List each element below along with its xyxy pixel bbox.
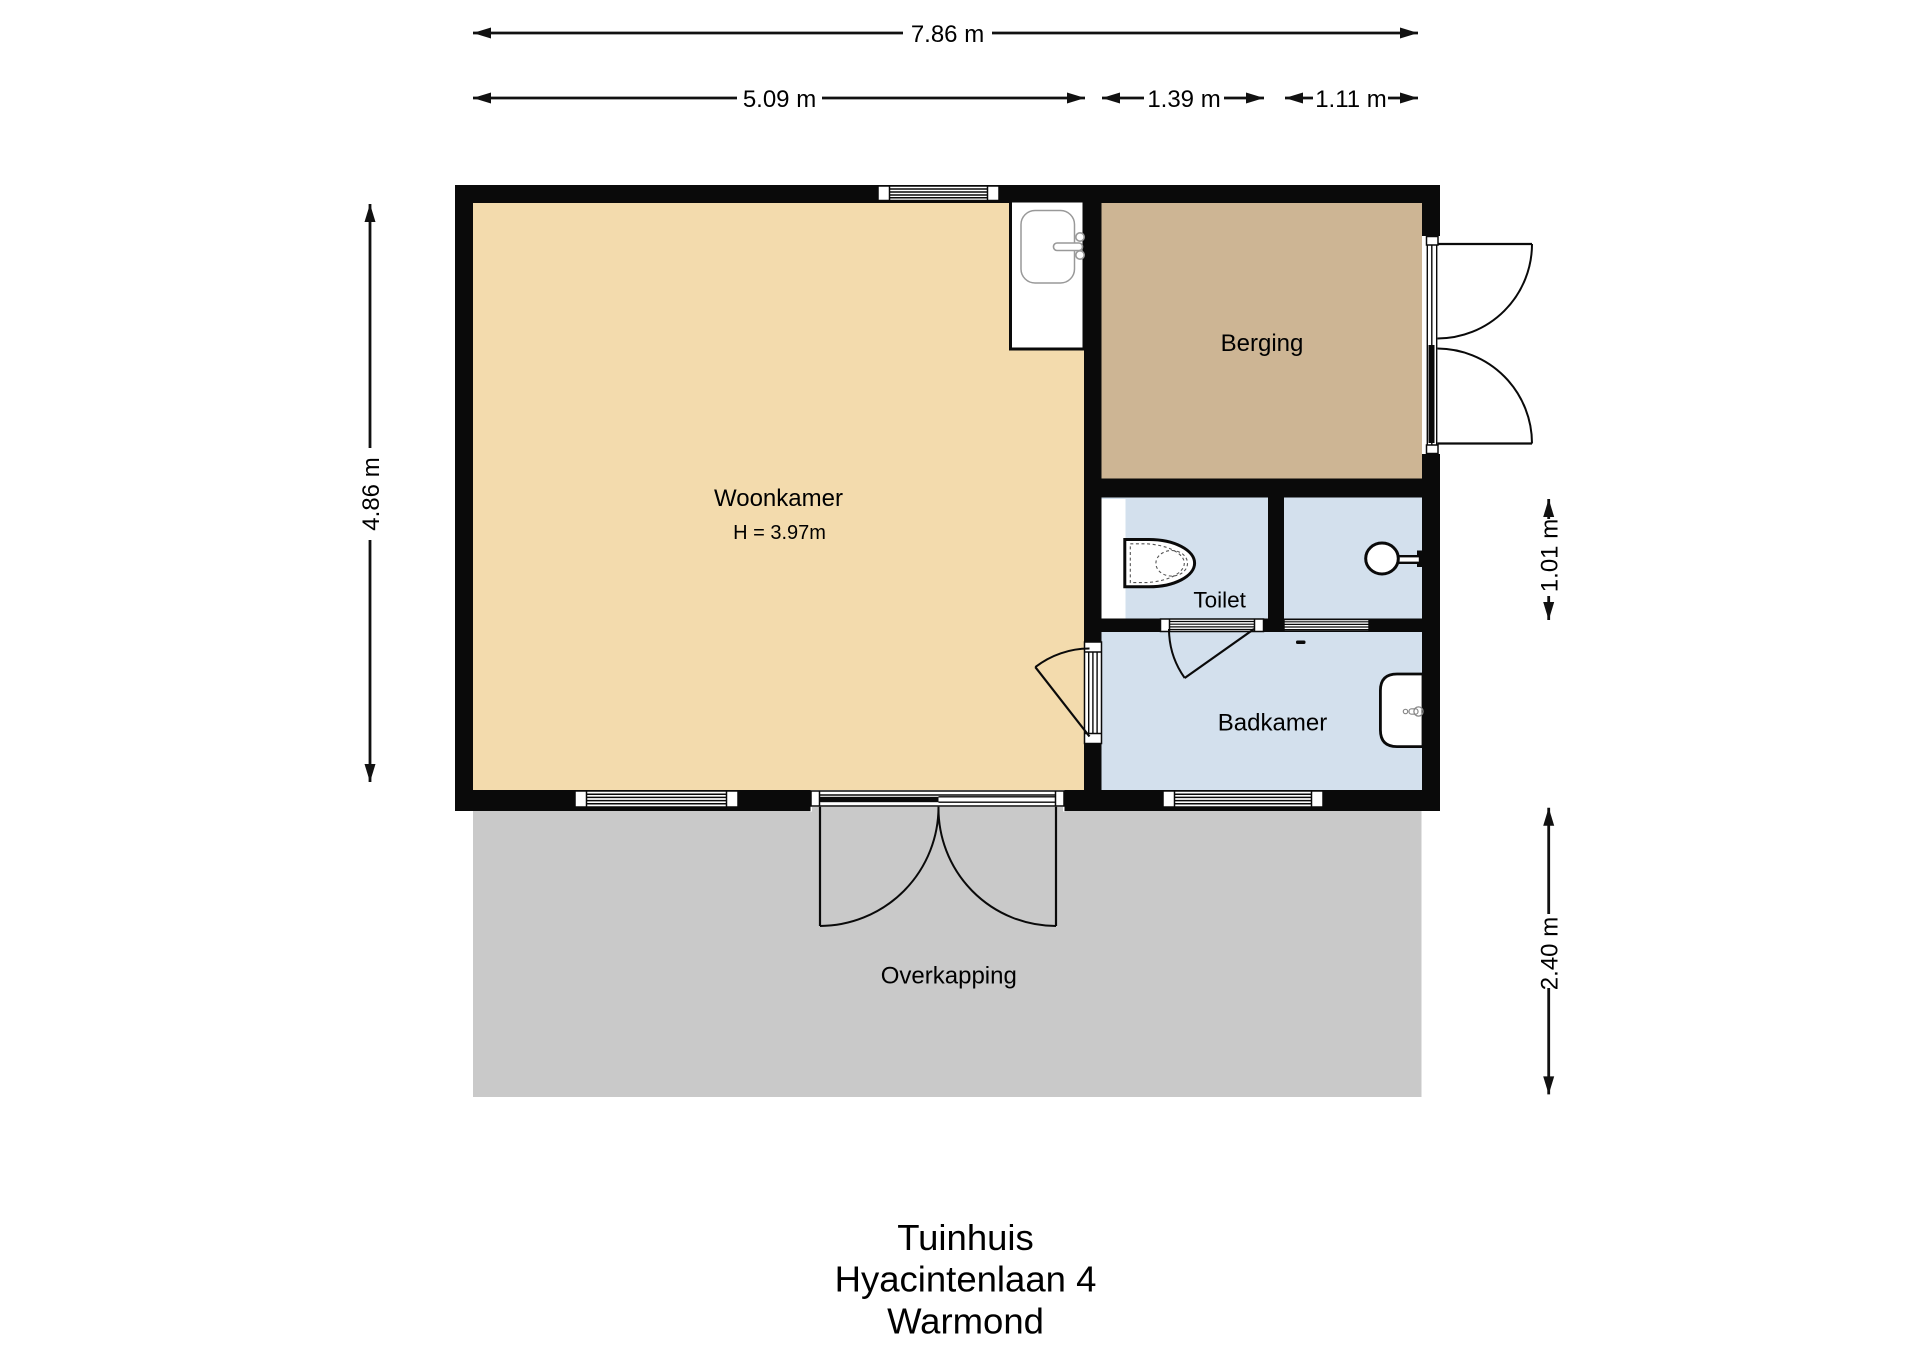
svg-text:Warmond: Warmond <box>887 1300 1044 1341</box>
svg-text:1.01 m: 1.01 m <box>1537 519 1564 592</box>
svg-text:Overkapping: Overkapping <box>881 962 1017 989</box>
svg-text:Toilet: Toilet <box>1193 587 1246 612</box>
svg-text:Berging: Berging <box>1221 330 1304 357</box>
svg-text:Tuinhuis: Tuinhuis <box>897 1217 1034 1258</box>
svg-text:1.39 m: 1.39 m <box>1147 86 1220 113</box>
svg-text:2.40 m: 2.40 m <box>1537 917 1564 990</box>
svg-text:Hyacintenlaan 4: Hyacintenlaan 4 <box>835 1259 1097 1300</box>
svg-text:Badkamer: Badkamer <box>1218 710 1327 737</box>
svg-text:H = 3.97m: H = 3.97m <box>733 522 826 544</box>
svg-text:5.09 m: 5.09 m <box>743 86 816 113</box>
svg-text:4.86 m: 4.86 m <box>358 457 385 530</box>
svg-text:Woonkamer: Woonkamer <box>714 485 843 512</box>
svg-text:1.11 m: 1.11 m <box>1315 86 1387 113</box>
svg-text:7.86 m: 7.86 m <box>911 21 984 48</box>
